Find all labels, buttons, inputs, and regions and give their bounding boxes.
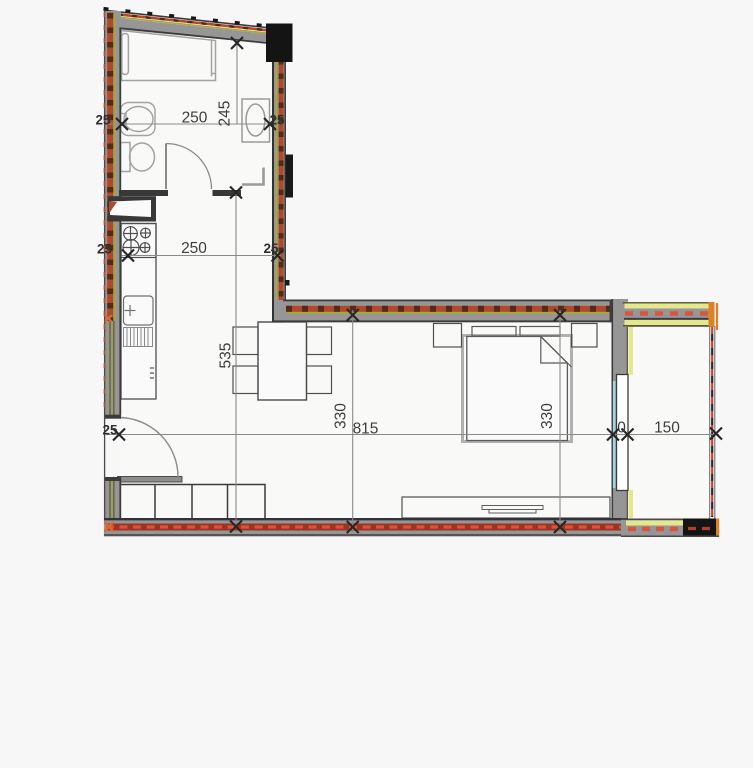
svg-text:245: 245 xyxy=(217,101,234,127)
svg-text:330: 330 xyxy=(539,403,556,429)
svg-text:25: 25 xyxy=(263,241,279,256)
svg-text:150: 150 xyxy=(654,420,680,437)
svg-text:250: 250 xyxy=(181,240,207,257)
svg-text:0: 0 xyxy=(617,420,626,437)
svg-text:25: 25 xyxy=(269,113,285,128)
svg-text:25: 25 xyxy=(95,113,111,128)
svg-text:535: 535 xyxy=(218,343,235,369)
svg-text:25: 25 xyxy=(102,423,118,438)
svg-text:25: 25 xyxy=(97,242,113,257)
svg-text:815: 815 xyxy=(353,421,379,438)
svg-text:250: 250 xyxy=(182,110,208,127)
svg-text:330: 330 xyxy=(333,403,350,429)
